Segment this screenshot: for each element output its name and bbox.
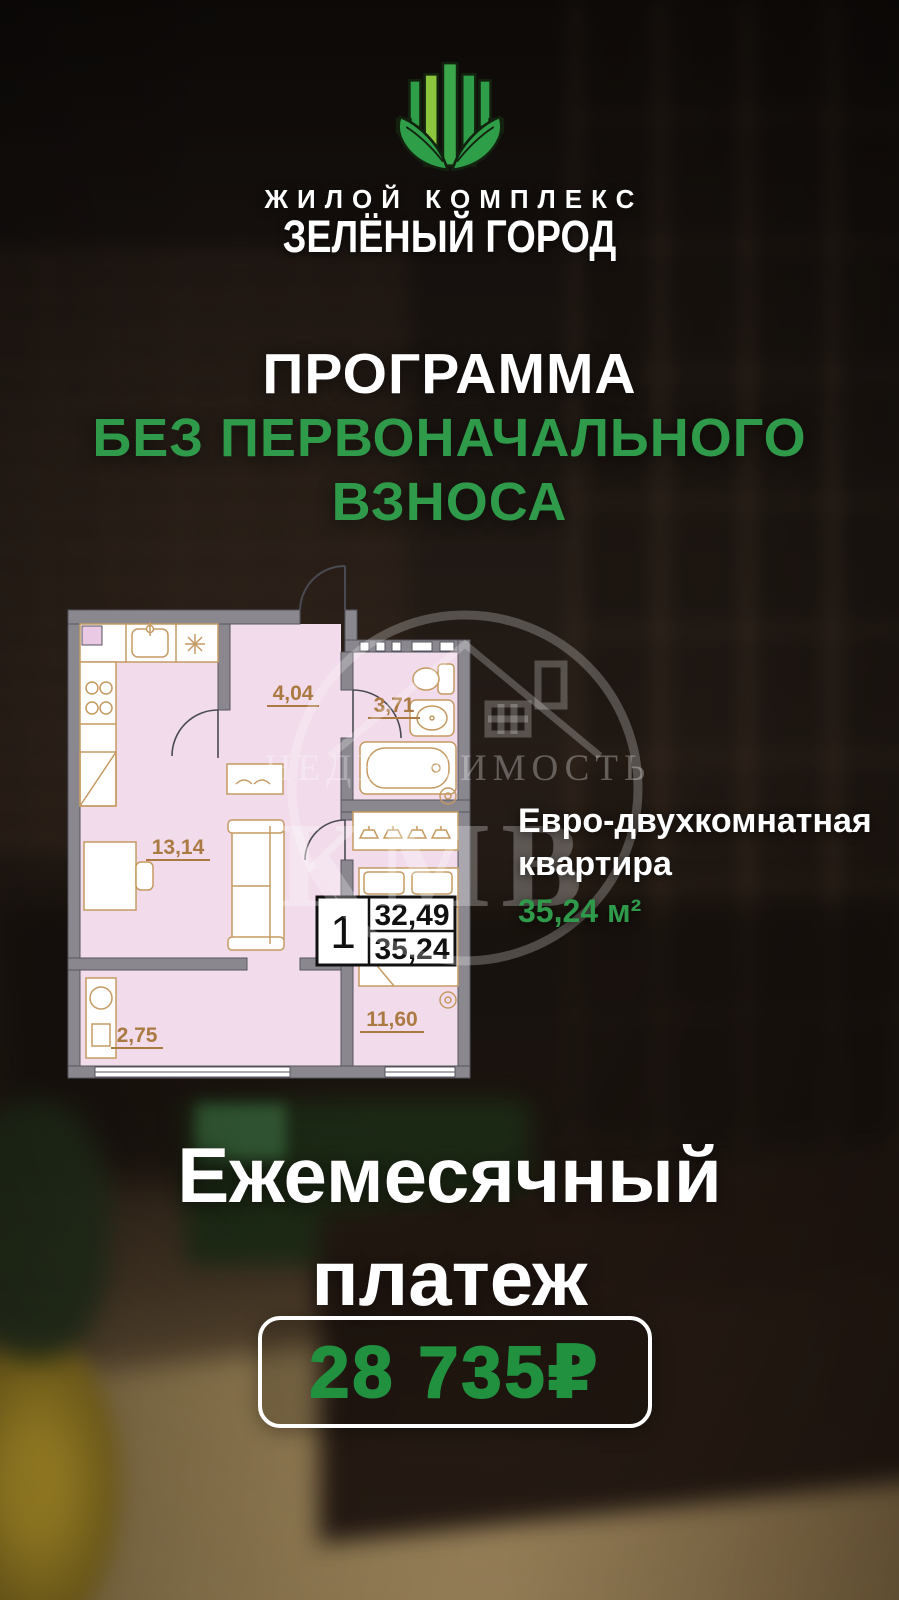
- area-label-living: 13,14: [152, 836, 205, 859]
- legend-living-area: 32,49: [374, 899, 449, 932]
- monthly-label-line-1: Ежемесячный: [0, 1124, 899, 1227]
- monthly-label-line-2: платеж: [0, 1227, 899, 1330]
- apartment-area: 35,24 м²: [518, 893, 872, 930]
- monthly-payment-label: Ежемесячный платеж: [0, 1124, 899, 1330]
- promo-headline: ПРОГРАММА БЕЗ ПЕРВОНАЧАЛЬНОГО ВЗНОСА: [0, 342, 899, 534]
- entrance-door-arc: [300, 566, 345, 610]
- ruble-sign: ₽: [548, 1333, 601, 1413]
- price-value: 28 735₽: [309, 1330, 600, 1414]
- wardrobe: [353, 812, 458, 850]
- area-label-bathroom: 3,71: [374, 694, 415, 717]
- area-label-bedroom: 11,60: [366, 1008, 417, 1031]
- sofa: [228, 820, 284, 950]
- legend-rooms-count: 1: [330, 906, 356, 958]
- price-box: 28 735₽: [258, 1316, 652, 1428]
- kitchen-duct: [82, 626, 102, 645]
- bedroom-window: [385, 1067, 455, 1077]
- complex-name-label: ЗЕЛЁНЫЙ ГОРОД: [72, 211, 827, 263]
- tree-logo-icon: [388, 58, 512, 186]
- balcony-boiler: [86, 978, 116, 1058]
- price-amount: 28 735: [309, 1333, 547, 1413]
- hallway-bench: [227, 764, 283, 794]
- apartment-type-line-1: Евро-двухкомнатная: [518, 800, 872, 843]
- promo-line-2: БЕЗ ПЕРВОНАЧАЛЬНОГО: [0, 406, 899, 470]
- bathtub: [360, 742, 456, 794]
- area-label-hallway: 4,04: [273, 682, 314, 705]
- promo-poster: ЖИЛОЙ КОМПЛЕКС ЗЕЛЁНЫЙ ГОРОД ПРОГРАММА Б…: [0, 0, 899, 1600]
- promo-line-1: ПРОГРАММА: [0, 342, 899, 406]
- area-label-balcony: 2,75: [117, 1024, 158, 1047]
- apartment-info: Евро-двухкомнатная квартира 35,24 м²: [518, 800, 872, 930]
- fridge-symbol: [185, 634, 205, 654]
- plan-legend: 1 32,49 35,24: [317, 897, 455, 966]
- promo-line-3: ВЗНОСА: [0, 470, 899, 534]
- legend-total-area: 35,24: [374, 933, 449, 966]
- balcony-window: [95, 1067, 290, 1077]
- apartment-type-line-2: квартира: [518, 843, 872, 886]
- floor-plan: 4,04 3,71 13,14 2,75 11,60 1 32,49 35,24: [64, 562, 474, 1082]
